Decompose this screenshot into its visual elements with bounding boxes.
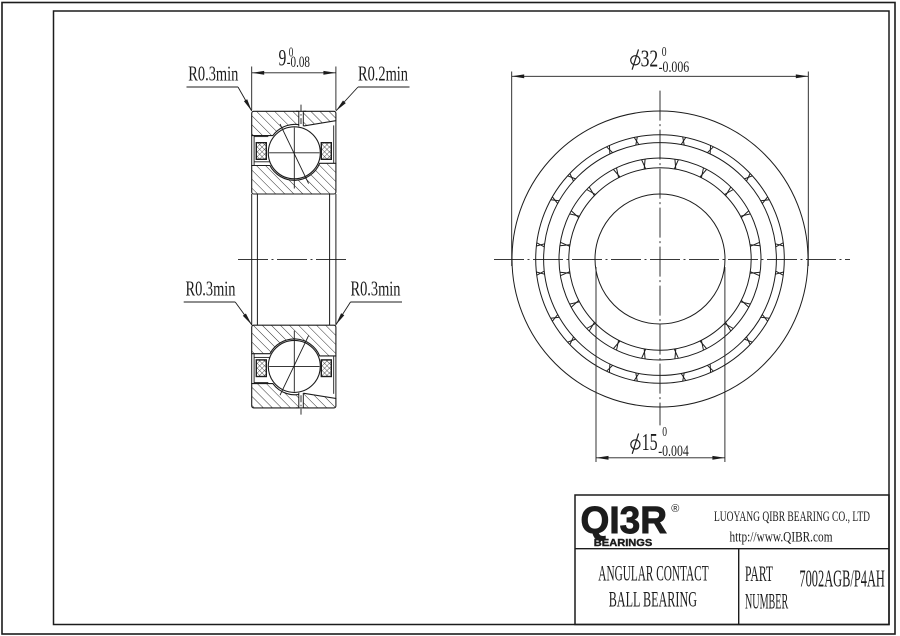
svg-text:-0.004: -0.004 xyxy=(658,443,689,460)
svg-text:BEARINGS: BEARINGS xyxy=(594,537,653,549)
svg-text:7002AGB/P4AH: 7002AGB/P4AH xyxy=(799,566,885,593)
svg-text:-0.08: -0.08 xyxy=(287,54,310,71)
svg-text:http://www.QIBR.com: http://www.QIBR.com xyxy=(730,529,833,545)
svg-text:LUOYANG QIBR BEARING CO., LTD: LUOYANG QIBR BEARING CO., LTD xyxy=(714,509,870,525)
svg-text:R0.3min: R0.3min xyxy=(186,277,236,301)
svg-text:ANGULAR CONTACT: ANGULAR CONTACT xyxy=(598,560,709,585)
svg-text:-0.006: -0.006 xyxy=(659,59,690,76)
svg-text:0: 0 xyxy=(662,424,667,439)
svg-text:QI3R: QI3R xyxy=(581,500,668,542)
svg-text:PART: PART xyxy=(745,561,773,586)
svg-text:15: 15 xyxy=(642,430,658,456)
svg-text:9: 9 xyxy=(279,46,287,71)
svg-text:R0.3min: R0.3min xyxy=(188,62,238,86)
svg-text:®: ® xyxy=(671,503,679,515)
svg-text:R0.2min: R0.2min xyxy=(358,62,408,86)
svg-text:NUMBER: NUMBER xyxy=(745,588,788,613)
svg-text:32: 32 xyxy=(641,47,659,73)
svg-text:R0.3min: R0.3min xyxy=(351,277,401,301)
svg-text:0: 0 xyxy=(662,44,667,59)
svg-text:BALL BEARING: BALL BEARING xyxy=(609,586,697,611)
